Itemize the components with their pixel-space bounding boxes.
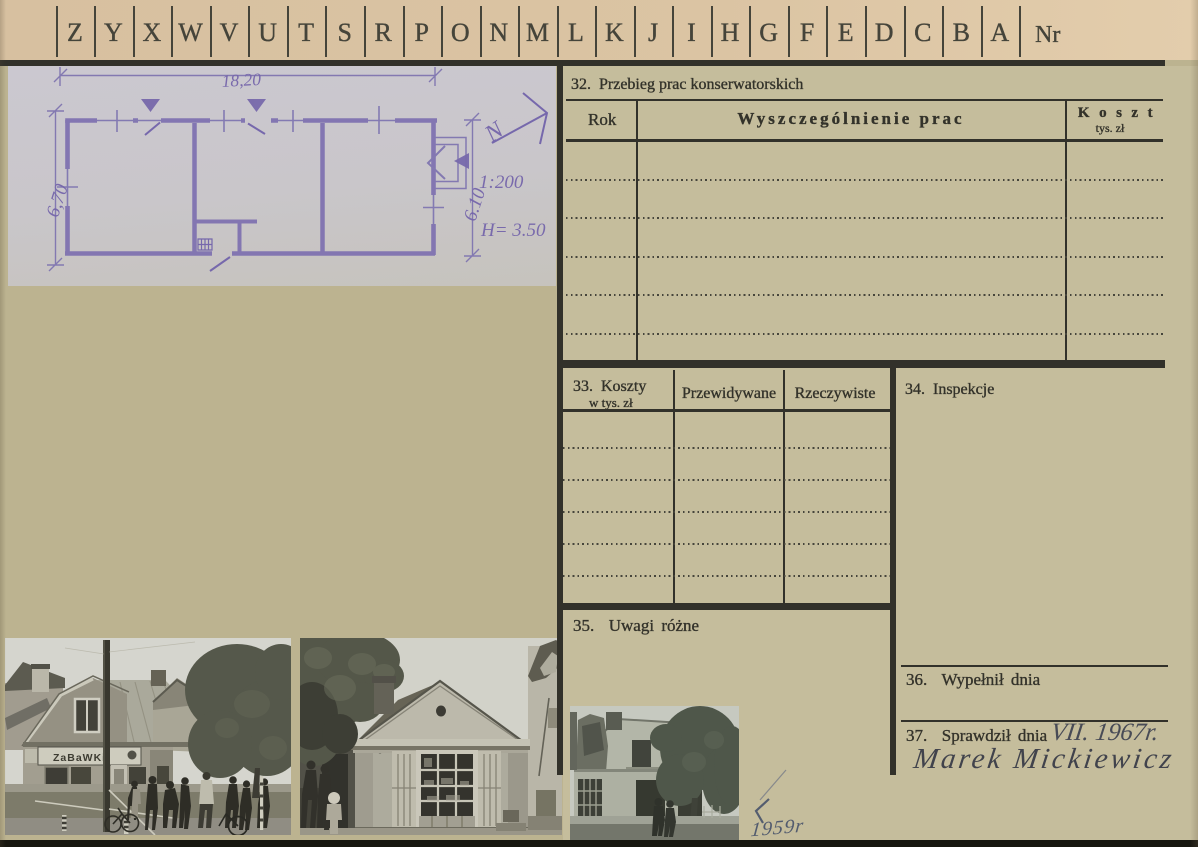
svg-text:1:200: 1:200 (479, 172, 524, 193)
svg-text:N: N (480, 116, 510, 148)
svg-text:H= 3.50: H= 3.50 (480, 220, 546, 241)
svg-text:18,20: 18,20 (221, 69, 262, 91)
